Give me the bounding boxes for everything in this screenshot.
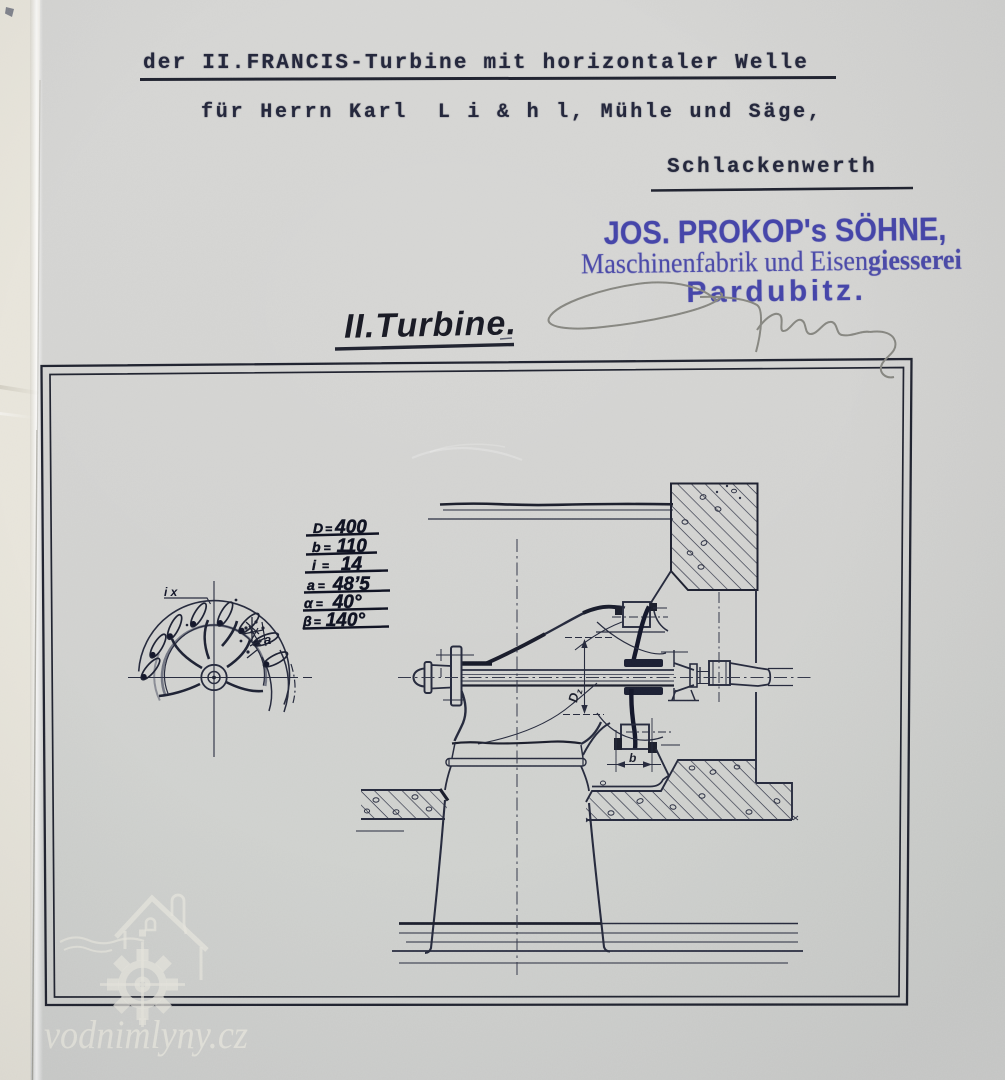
svg-text:a: a — [264, 632, 271, 647]
svg-text:vodnimlyny.cz: vodnimlyny.cz — [44, 1012, 248, 1057]
svg-text:Dz: Dz — [565, 687, 584, 704]
svg-text:b: b — [629, 751, 636, 765]
svg-text:i x: i x — [164, 585, 179, 599]
